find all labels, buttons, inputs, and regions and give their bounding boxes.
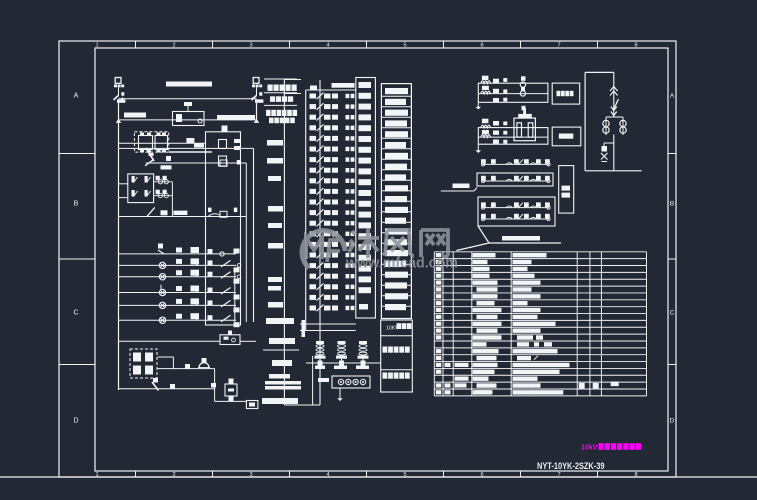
svg-text:B: B — [74, 201, 79, 208]
svg-text:D: D — [670, 418, 675, 425]
svg-text:2: 2 — [172, 472, 175, 478]
svg-text:A: A — [74, 93, 79, 100]
svg-text:6: 6 — [480, 43, 483, 49]
svg-text:www.mfcad.com: www.mfcad.com — [345, 255, 458, 272]
svg-text:D: D — [73, 418, 78, 425]
svg-text:B: B — [670, 201, 674, 208]
svg-text:1: 1 — [95, 472, 98, 478]
svg-text:3: 3 — [249, 472, 252, 478]
svg-text:5: 5 — [403, 472, 406, 478]
svg-text:NYT-10YK-2SZK-39: NYT-10YK-2SZK-39 — [537, 461, 605, 471]
svg-text:2: 2 — [172, 43, 175, 49]
svg-text:7: 7 — [557, 472, 560, 478]
svg-text:C: C — [73, 310, 78, 317]
svg-text:4: 4 — [326, 472, 329, 478]
svg-text:5: 5 — [403, 43, 406, 49]
svg-text:4: 4 — [326, 43, 329, 49]
svg-text:3: 3 — [249, 43, 252, 49]
svg-text:A: A — [670, 93, 675, 100]
svg-text:8: 8 — [634, 43, 637, 49]
svg-text:1: 1 — [95, 43, 98, 49]
svg-text:8: 8 — [634, 472, 637, 478]
svg-text:10kV: 10kV — [581, 443, 598, 452]
svg-text:C: C — [670, 310, 675, 317]
svg-text:6: 6 — [480, 472, 483, 478]
svg-text:7: 7 — [557, 43, 560, 49]
